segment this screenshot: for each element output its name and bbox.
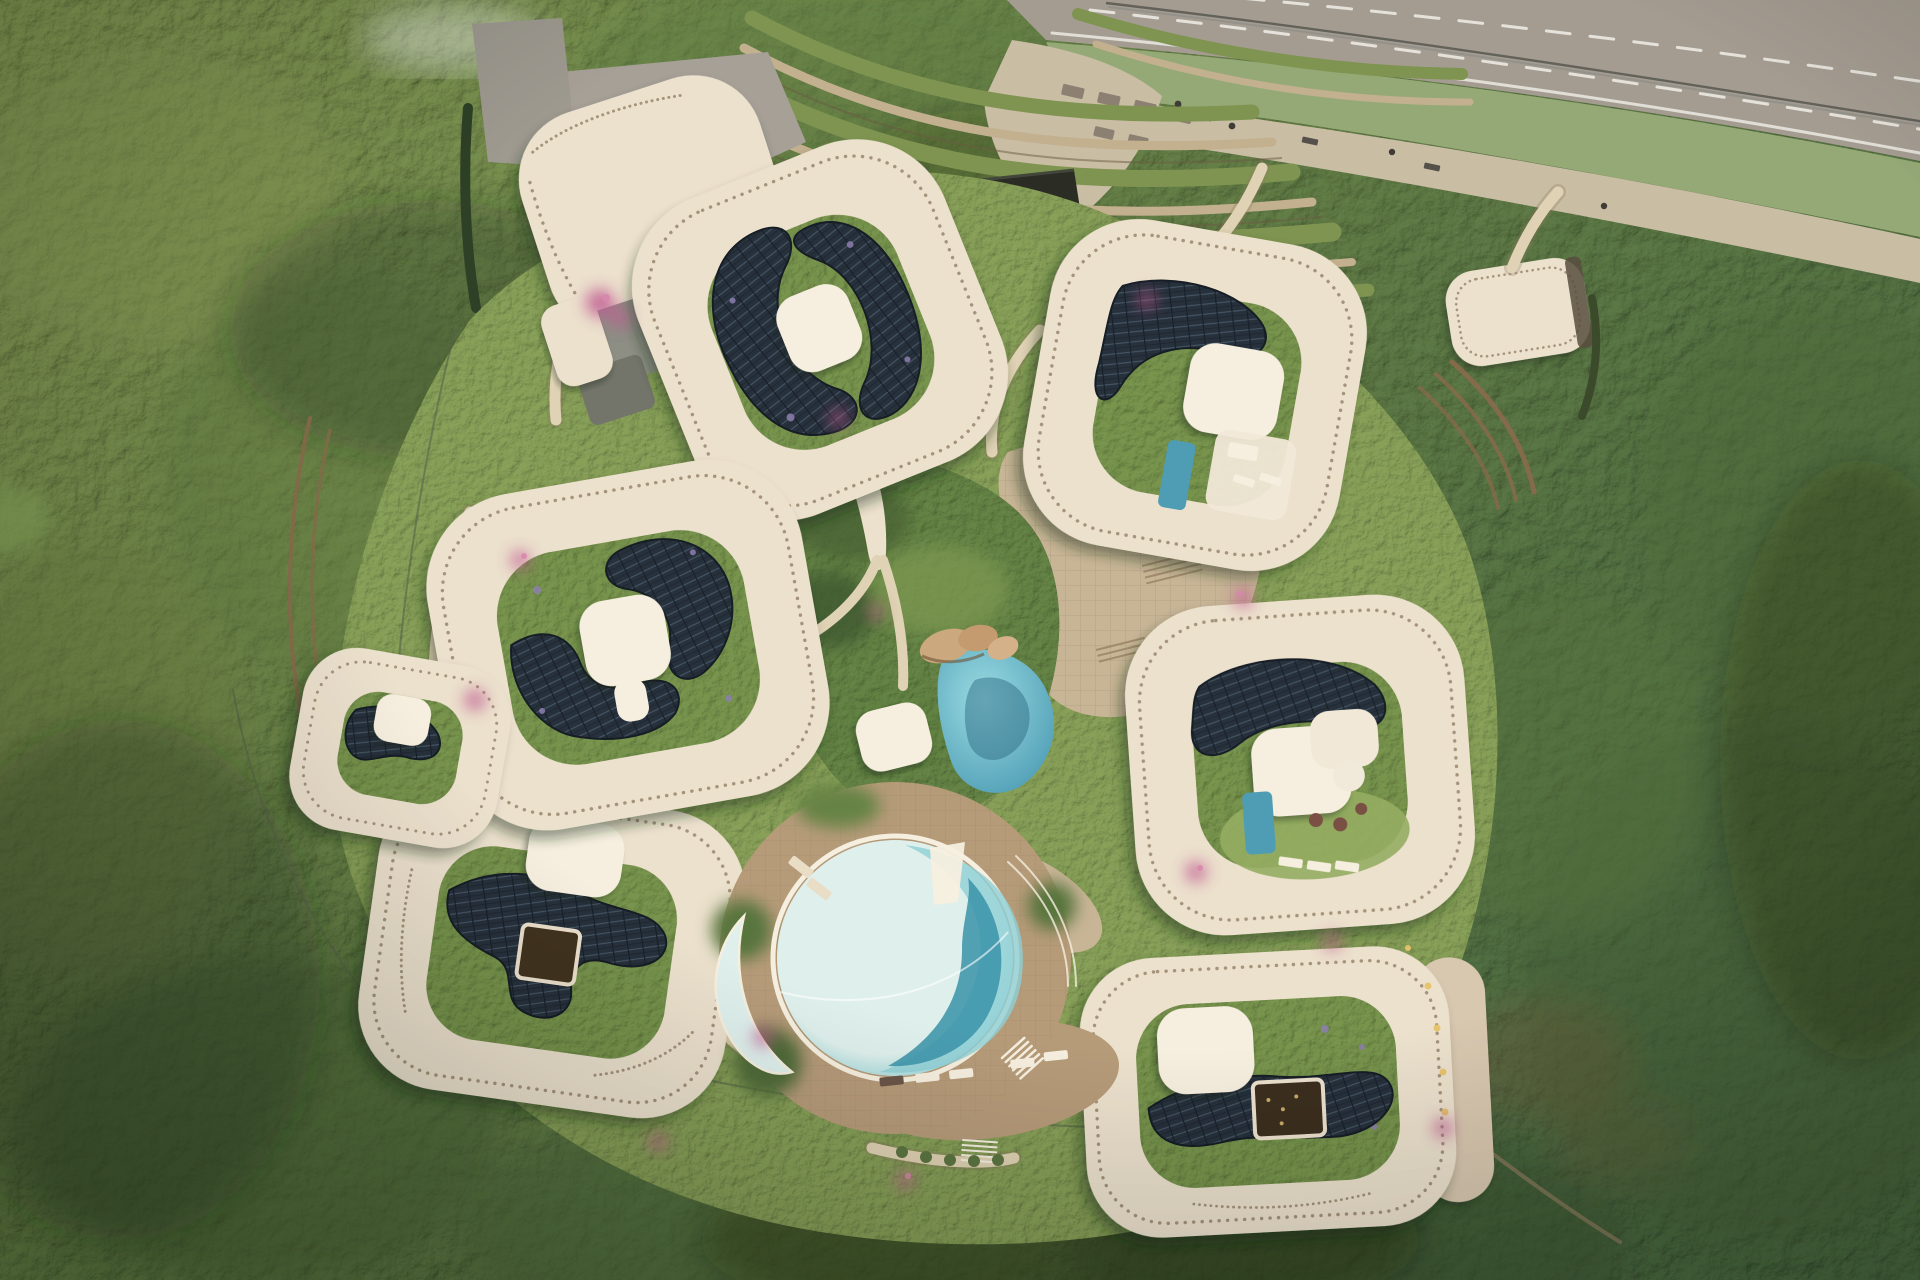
aerial-render — [0, 0, 1920, 1280]
aerial-render-stage — [0, 0, 1920, 1280]
vignette — [0, 0, 1920, 1280]
